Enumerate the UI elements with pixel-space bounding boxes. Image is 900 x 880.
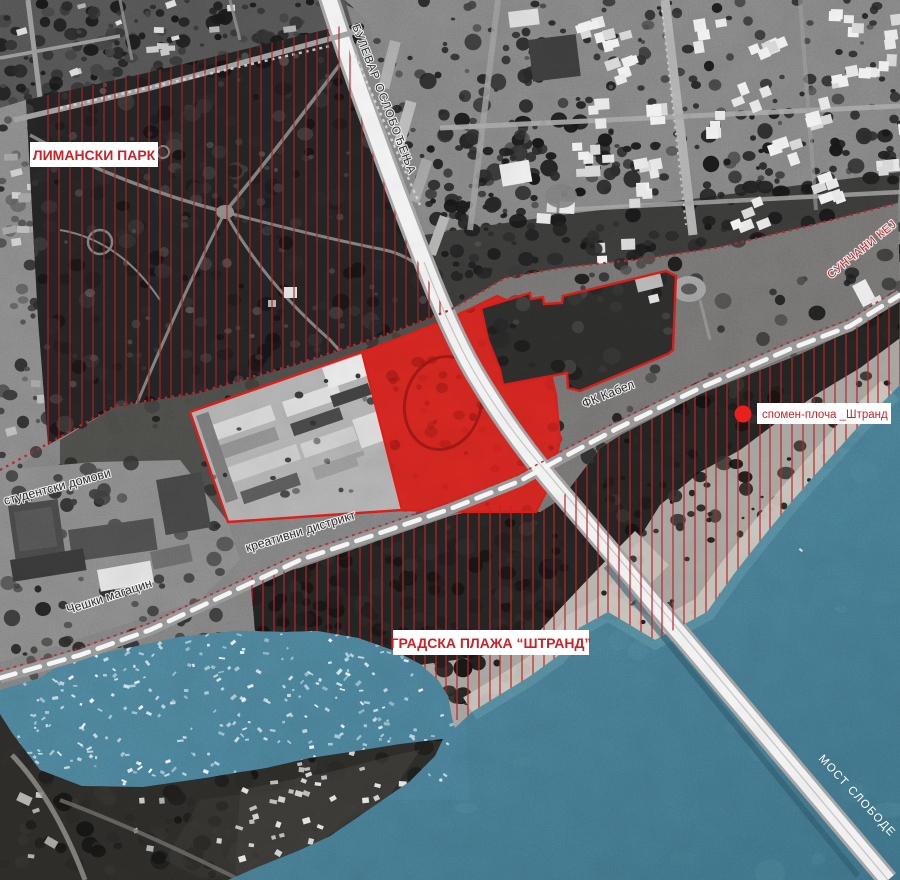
svg-text:ЛИМАНСКИ ПАРК: ЛИМАНСКИ ПАРК: [33, 147, 156, 163]
svg-text:спомен-плоча _Штранд: спомен-плоча _Штранд: [762, 409, 888, 421]
svg-text:ГРАДСКА ПЛАЖА “ШТРАНД”: ГРАДСКА ПЛАЖА “ШТРАНД”: [391, 635, 592, 651]
